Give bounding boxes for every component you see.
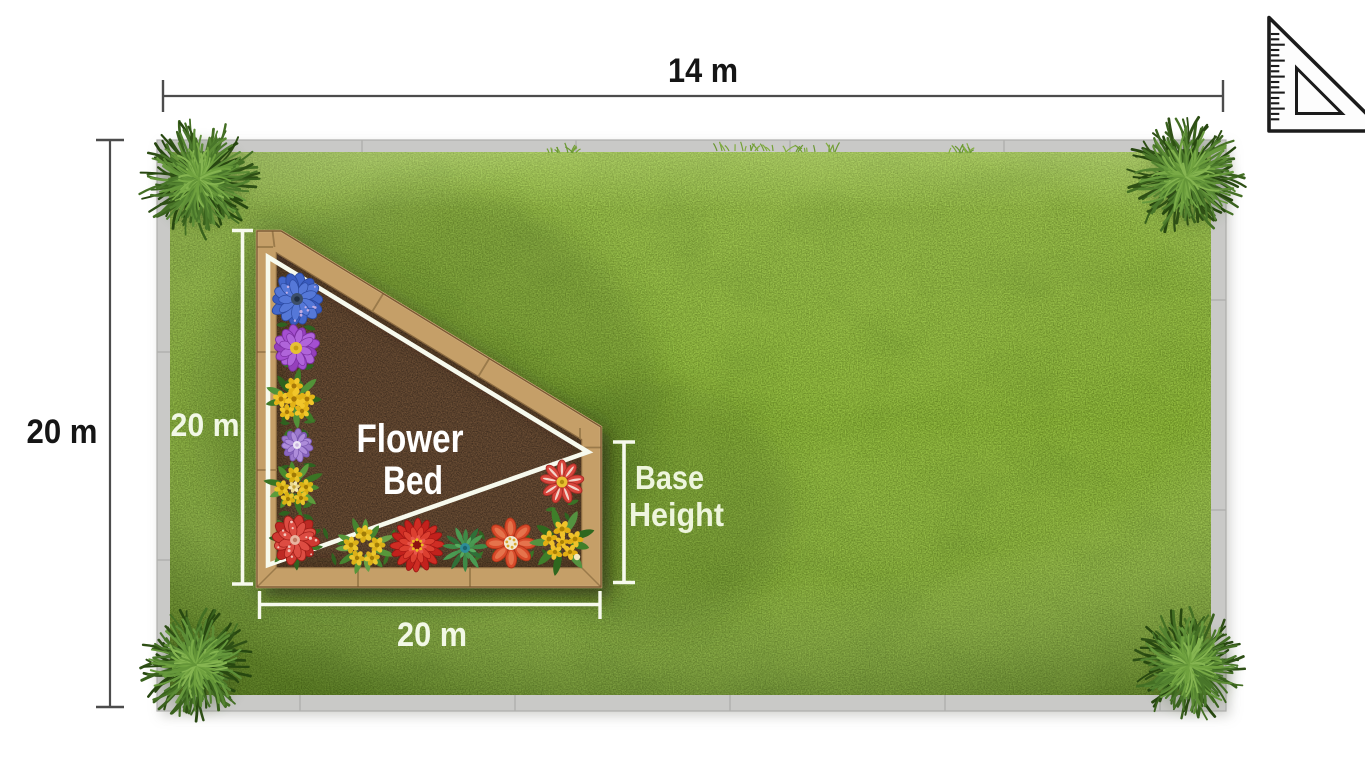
svg-text:14 m: 14 m [668,52,738,90]
svg-text:20 m: 20 m [27,413,98,451]
svg-text:Height: Height [629,496,724,533]
svg-text:20 m: 20 m [171,407,240,443]
svg-text:Base: Base [635,459,704,496]
svg-text:20 m: 20 m [397,616,467,654]
svg-text:Flower: Flower [357,417,464,461]
svg-text:Bed: Bed [383,459,443,503]
